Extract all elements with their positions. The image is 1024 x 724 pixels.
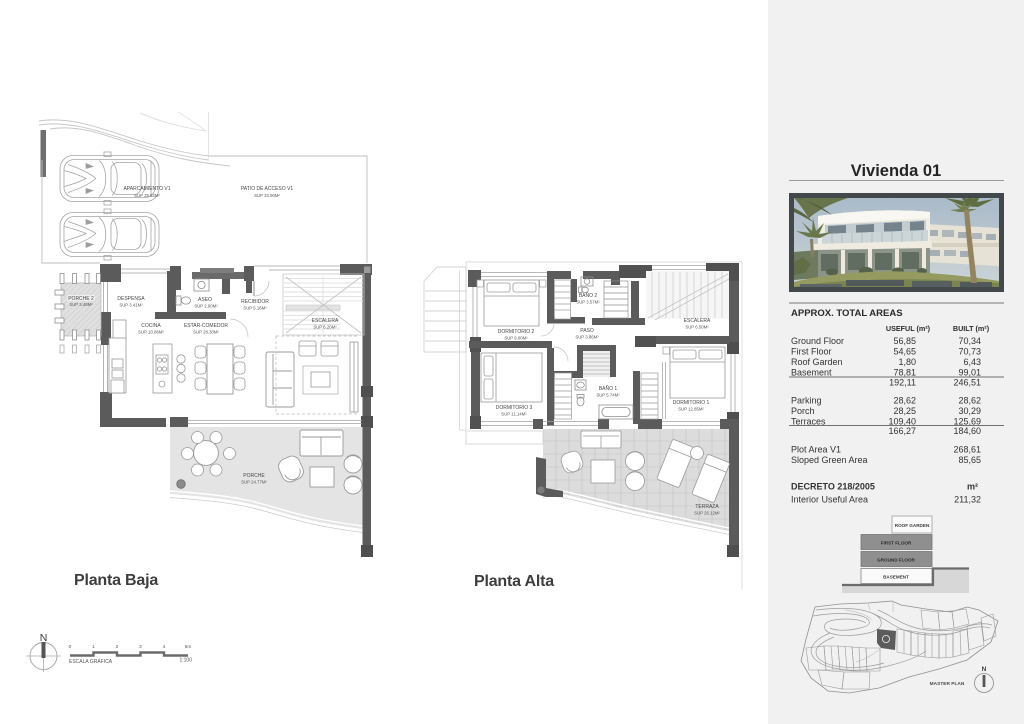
svg-text:70,73: 70,73 [958, 347, 981, 357]
svg-text:211,32: 211,32 [954, 495, 981, 505]
svg-text:BAÑO 2: BAÑO 2 [579, 292, 598, 299]
svg-text:192,11: 192,11 [889, 378, 916, 388]
svg-text:SUP 11.14M²: SUP 11.14M² [501, 412, 527, 417]
svg-text:m²: m² [967, 482, 978, 492]
svg-text:N: N [40, 632, 48, 644]
svg-text:184,60: 184,60 [953, 426, 981, 436]
svg-text:30,29: 30,29 [958, 406, 981, 416]
svg-text:Vivienda 01: Vivienda 01 [851, 162, 942, 180]
svg-text:Roof Garden: Roof Garden [791, 357, 843, 367]
svg-text:1:100: 1:100 [179, 658, 192, 664]
svg-text:N: N [982, 666, 987, 673]
svg-text:28,62: 28,62 [958, 396, 981, 406]
svg-text:Parking: Parking [791, 396, 822, 406]
svg-text:28,25: 28,25 [893, 406, 916, 416]
svg-text:SUP 24.77M²: SUP 24.77M² [241, 480, 267, 485]
svg-text:268,61: 268,61 [953, 445, 981, 455]
svg-text:ESTAR-COMEDOR: ESTAR-COMEDOR [184, 323, 228, 329]
svg-text:COCINA: COCINA [141, 323, 161, 329]
svg-text:Interior Useful Area: Interior Useful Area [791, 495, 868, 505]
svg-text:DORMITORIO 1: DORMITORIO 1 [673, 400, 710, 406]
svg-text:99,01: 99,01 [958, 368, 981, 378]
svg-text:SUP 33.90M²: SUP 33.90M² [254, 193, 280, 198]
svg-text:5m: 5m [185, 644, 192, 650]
svg-text:3: 3 [139, 644, 142, 650]
svg-text:ESCALA GRÁFICA: ESCALA GRÁFICA [69, 658, 113, 665]
svg-text:ASEO: ASEO [198, 297, 212, 303]
svg-text:Ground Floor: Ground Floor [791, 336, 844, 346]
svg-text:SUP 3.41M²: SUP 3.41M² [119, 303, 143, 308]
svg-text:DORMITORIO 2: DORMITORIO 2 [498, 329, 535, 335]
svg-text:DECRETO 218/2005: DECRETO 218/2005 [791, 482, 875, 492]
svg-text:FIRST FLOOR: FIRST FLOOR [881, 541, 912, 546]
svg-text:0: 0 [69, 644, 72, 650]
svg-text:RECIBIDOR: RECIBIDOR [241, 299, 269, 305]
svg-text:BUILT (m²): BUILT (m²) [953, 324, 990, 333]
svg-text:SUP 3.48M²: SUP 3.48M² [69, 302, 93, 307]
svg-text:6,43: 6,43 [963, 357, 981, 367]
svg-text:SUP 3.86M²: SUP 3.86M² [575, 335, 599, 340]
svg-text:1,80: 1,80 [898, 357, 916, 367]
svg-text:SUP 5.16M²: SUP 5.16M² [243, 306, 267, 311]
svg-text:GROUND FLOOR: GROUND FLOOR [877, 558, 915, 563]
svg-text:BASEMENT: BASEMENT [883, 575, 909, 580]
svg-text:DESPENSA: DESPENSA [117, 296, 145, 302]
svg-text:SUP 6.20M²: SUP 6.20M² [313, 325, 337, 330]
svg-text:1: 1 [92, 644, 95, 650]
svg-text:SUP 25.62M²: SUP 25.62M² [134, 193, 160, 198]
svg-text:SUP 2.90M²: SUP 2.90M² [194, 304, 218, 309]
svg-text:56,85: 56,85 [893, 336, 916, 346]
svg-text:SUP 6.50M²: SUP 6.50M² [685, 325, 709, 330]
svg-text:APARCAMIENTO V1: APARCAMIENTO V1 [123, 186, 170, 192]
svg-text:166,27: 166,27 [888, 426, 916, 436]
svg-text:PORCHE: PORCHE [243, 473, 265, 479]
svg-text:ROOF GARDEN: ROOF GARDEN [895, 523, 930, 528]
svg-text:SUP 5.74M²: SUP 5.74M² [596, 393, 620, 398]
svg-text:DORMITORIO 3: DORMITORIO 3 [496, 405, 533, 411]
svg-text:SUP 9.00M²: SUP 9.00M² [504, 336, 528, 341]
svg-text:Basement: Basement [791, 368, 832, 378]
svg-text:Plot Area V1: Plot Area V1 [791, 445, 841, 455]
svg-text:Porch: Porch [791, 406, 815, 416]
svg-text:Sloped Green Area: Sloped Green Area [791, 455, 868, 465]
svg-text:SUP 28.30M²: SUP 28.30M² [193, 330, 219, 335]
svg-text:SUP 12.85M²: SUP 12.85M² [678, 407, 704, 412]
svg-text:APPROX. TOTAL AREAS: APPROX. TOTAL AREAS [791, 308, 903, 319]
svg-text:70,34: 70,34 [958, 336, 981, 346]
svg-text:BAÑO 1: BAÑO 1 [599, 385, 618, 392]
svg-text:Planta Baja: Planta Baja [74, 572, 158, 589]
svg-text:4: 4 [163, 644, 166, 650]
svg-text:MASTER PLAN: MASTER PLAN [930, 681, 965, 687]
svg-text:SUP 3.57M²: SUP 3.57M² [576, 300, 600, 305]
svg-text:SUP 26.12M²: SUP 26.12M² [694, 511, 720, 516]
svg-text:SUP 10.86M²: SUP 10.86M² [138, 330, 164, 335]
svg-text:ESCALERA: ESCALERA [312, 318, 339, 324]
svg-text:Planta Alta: Planta Alta [474, 573, 554, 590]
svg-text:85,65: 85,65 [958, 455, 981, 465]
svg-text:First Floor: First Floor [791, 347, 832, 357]
svg-text:ESCALERA: ESCALERA [684, 318, 711, 324]
svg-text:54,65: 54,65 [893, 347, 916, 357]
svg-text:PATIO DE ACCESO V1: PATIO DE ACCESO V1 [241, 186, 294, 192]
svg-text:78,81: 78,81 [893, 368, 916, 378]
svg-text:28,62: 28,62 [893, 396, 916, 406]
svg-text:2: 2 [116, 644, 119, 650]
svg-text:TERRAZA: TERRAZA [695, 504, 719, 510]
svg-text:PASO: PASO [580, 328, 594, 334]
svg-text:USEFUL (m²): USEFUL (m²) [886, 324, 931, 333]
svg-text:246,51: 246,51 [953, 378, 981, 388]
